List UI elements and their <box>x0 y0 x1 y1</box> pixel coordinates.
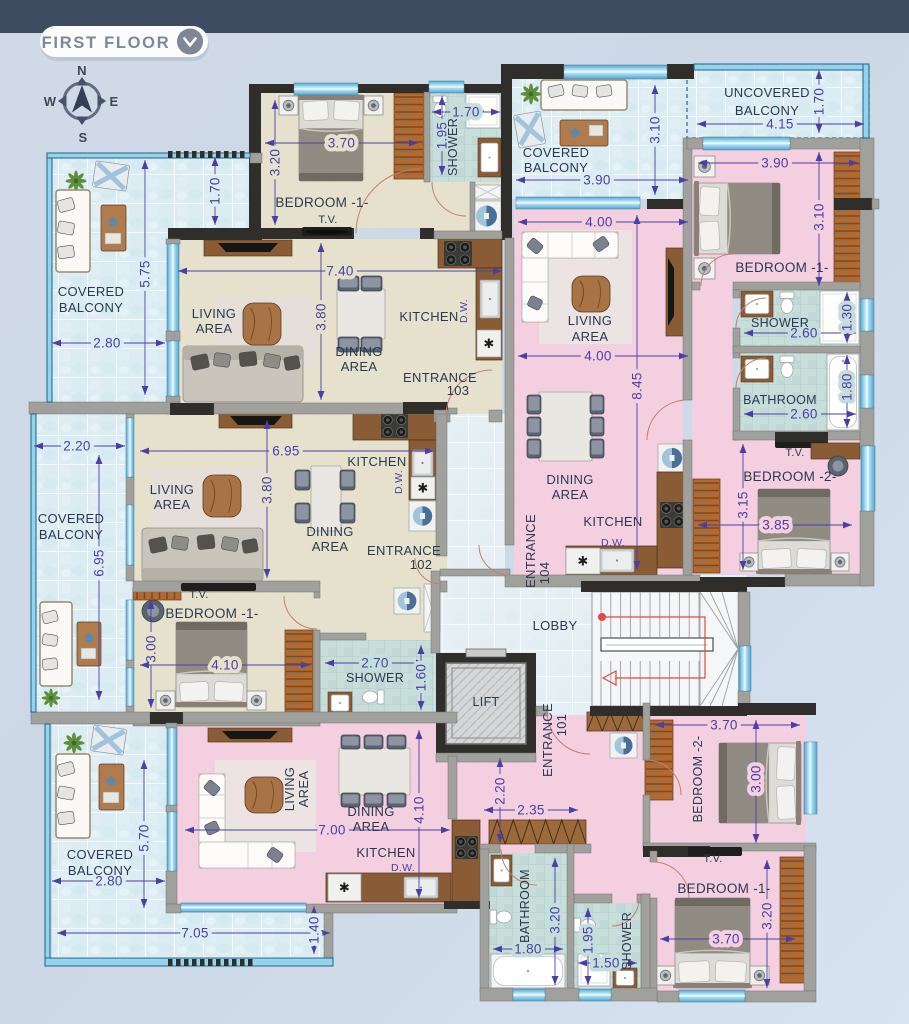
svg-text:DINING: DINING <box>347 804 394 819</box>
svg-text:BEDROOM -2-: BEDROOM -2- <box>691 736 705 823</box>
svg-text:101: 101 <box>554 714 569 737</box>
svg-text:SHOWER: SHOWER <box>620 912 634 970</box>
svg-text:LIVING: LIVING <box>150 482 194 497</box>
svg-text:DINING: DINING <box>335 344 382 359</box>
svg-text:KITCHEN: KITCHEN <box>583 514 642 529</box>
svg-text:LIFT: LIFT <box>473 695 500 709</box>
svg-text:KITCHEN: KITCHEN <box>399 309 458 324</box>
svg-text:3.70: 3.70 <box>328 136 355 151</box>
svg-text:E: E <box>110 94 119 109</box>
svg-text:AREA: AREA <box>296 771 311 808</box>
svg-text:COVERED: COVERED <box>523 145 589 160</box>
svg-text:AREA: AREA <box>572 329 609 344</box>
svg-text:KITCHEN: KITCHEN <box>347 454 406 469</box>
svg-text:DINING: DINING <box>546 472 593 487</box>
svg-text:4.15: 4.15 <box>766 117 793 132</box>
svg-text:1.70: 1.70 <box>208 177 223 204</box>
svg-text:AREA: AREA <box>341 359 378 374</box>
svg-text:BALCONY: BALCONY <box>524 160 588 175</box>
svg-text:UNCOVERED: UNCOVERED <box>724 85 810 100</box>
svg-text:1.95: 1.95 <box>581 926 596 953</box>
svg-text:W: W <box>44 94 57 109</box>
svg-text:✱: ✱ <box>577 554 588 569</box>
svg-text:D.W.: D.W. <box>458 299 470 323</box>
svg-text:✱: ✱ <box>417 481 428 496</box>
svg-text:BATHROOM: BATHROOM <box>743 393 817 407</box>
svg-text:2.35: 2.35 <box>517 803 544 818</box>
svg-text:BEDROOM -1-: BEDROOM -1- <box>275 195 368 210</box>
svg-text:✱: ✱ <box>339 880 350 895</box>
svg-text:3.70: 3.70 <box>712 932 739 947</box>
svg-text:3.80: 3.80 <box>260 476 275 503</box>
svg-text:3.10: 3.10 <box>812 203 827 230</box>
svg-text:COVERED: COVERED <box>67 847 133 862</box>
svg-text:3.20: 3.20 <box>548 906 563 933</box>
svg-text:AREA: AREA <box>196 321 233 336</box>
svg-text:BALCONY: BALCONY <box>39 527 103 542</box>
svg-text:3.15: 3.15 <box>736 491 751 518</box>
svg-text:DINING: DINING <box>306 524 353 539</box>
svg-text:SHOWER: SHOWER <box>751 316 809 330</box>
svg-text:2.70: 2.70 <box>361 656 388 671</box>
svg-text:1.60: 1.60 <box>414 664 429 691</box>
svg-text:S: S <box>79 130 88 145</box>
svg-text:5.75: 5.75 <box>138 260 153 287</box>
svg-text:3.80: 3.80 <box>314 303 329 330</box>
svg-text:BEDROOM -2-: BEDROOM -2- <box>743 469 836 484</box>
svg-text:7.05: 7.05 <box>181 926 208 941</box>
svg-text:3.70: 3.70 <box>710 718 737 733</box>
svg-text:AREA: AREA <box>353 819 390 834</box>
svg-text:3.85: 3.85 <box>762 518 789 533</box>
svg-text:ENTRANCE: ENTRANCE <box>367 543 441 558</box>
svg-text:AREA: AREA <box>154 497 191 512</box>
svg-text:1.30: 1.30 <box>840 304 855 331</box>
svg-text:1.70: 1.70 <box>452 105 479 120</box>
svg-text:SHOWER: SHOWER <box>446 118 460 176</box>
svg-text:FIRST FLOOR: FIRST FLOOR <box>42 34 171 52</box>
svg-text:D.W.: D.W. <box>601 537 625 549</box>
svg-text:7.40: 7.40 <box>326 264 353 279</box>
svg-text:4.10: 4.10 <box>211 658 238 673</box>
svg-text:ENTRANCE: ENTRANCE <box>540 703 555 777</box>
svg-text:D.W.: D.W. <box>393 470 405 494</box>
svg-text:BEDROOM -1-: BEDROOM -1- <box>735 260 828 275</box>
svg-text:1.70: 1.70 <box>812 88 827 115</box>
svg-text:102: 102 <box>410 557 433 572</box>
svg-text:1.50: 1.50 <box>592 956 619 971</box>
svg-text:7.00: 7.00 <box>318 823 345 838</box>
svg-text:KITCHEN: KITCHEN <box>356 845 415 860</box>
svg-text:LIVING: LIVING <box>568 313 612 328</box>
svg-text:3.00: 3.00 <box>749 765 764 792</box>
svg-text:3.00: 3.00 <box>144 635 159 662</box>
svg-text:4.00: 4.00 <box>585 215 612 230</box>
svg-text:BATHROOM: BATHROOM <box>518 869 532 943</box>
svg-text:6.95: 6.95 <box>272 444 299 459</box>
svg-text:3.90: 3.90 <box>761 156 788 171</box>
svg-text:4.10: 4.10 <box>412 796 427 823</box>
svg-text:LIVING: LIVING <box>282 767 297 811</box>
svg-text:2.80: 2.80 <box>93 336 120 351</box>
svg-text:2.20: 2.20 <box>493 777 508 804</box>
svg-text:BEDROOM -1-: BEDROOM -1- <box>165 606 258 621</box>
svg-text:3.20: 3.20 <box>760 902 775 929</box>
svg-text:8.45: 8.45 <box>630 372 645 399</box>
svg-text:104: 104 <box>537 562 552 585</box>
svg-text:D.W.: D.W. <box>391 862 415 874</box>
svg-text:1.80: 1.80 <box>840 373 855 400</box>
svg-text:2.60: 2.60 <box>790 407 817 422</box>
svg-text:LIVING: LIVING <box>192 306 236 321</box>
svg-text:BALCONY: BALCONY <box>735 103 799 118</box>
svg-text:BALCONY: BALCONY <box>68 863 132 878</box>
svg-text:AREA: AREA <box>552 487 589 502</box>
svg-text:1.40: 1.40 <box>307 916 322 943</box>
svg-text:LOBBY: LOBBY <box>533 618 578 633</box>
svg-text:6.95: 6.95 <box>92 549 107 576</box>
svg-text:COVERED: COVERED <box>58 284 124 299</box>
svg-text:✱: ✱ <box>483 336 494 351</box>
svg-text:3.20: 3.20 <box>268 149 283 176</box>
svg-text:BEDROOM -1-: BEDROOM -1- <box>677 881 770 896</box>
svg-text:SHOWER: SHOWER <box>346 671 404 685</box>
svg-text:T.V.: T.V. <box>703 853 722 865</box>
svg-text:ENTRANCE: ENTRANCE <box>523 514 538 588</box>
svg-text:2.20: 2.20 <box>63 439 90 454</box>
svg-text:5.70: 5.70 <box>137 824 152 851</box>
svg-text:AREA: AREA <box>312 539 349 554</box>
svg-text:103: 103 <box>447 383 470 398</box>
svg-text:T.V.: T.V. <box>318 214 337 226</box>
svg-text:N: N <box>77 63 87 78</box>
svg-text:3.10: 3.10 <box>648 116 663 143</box>
svg-text:4.00: 4.00 <box>584 349 611 364</box>
svg-text:T.V.: T.V. <box>785 447 804 459</box>
svg-text:BALCONY: BALCONY <box>59 300 123 315</box>
svg-text:COVERED: COVERED <box>38 511 104 526</box>
svg-text:T.V.: T.V. <box>189 589 208 601</box>
